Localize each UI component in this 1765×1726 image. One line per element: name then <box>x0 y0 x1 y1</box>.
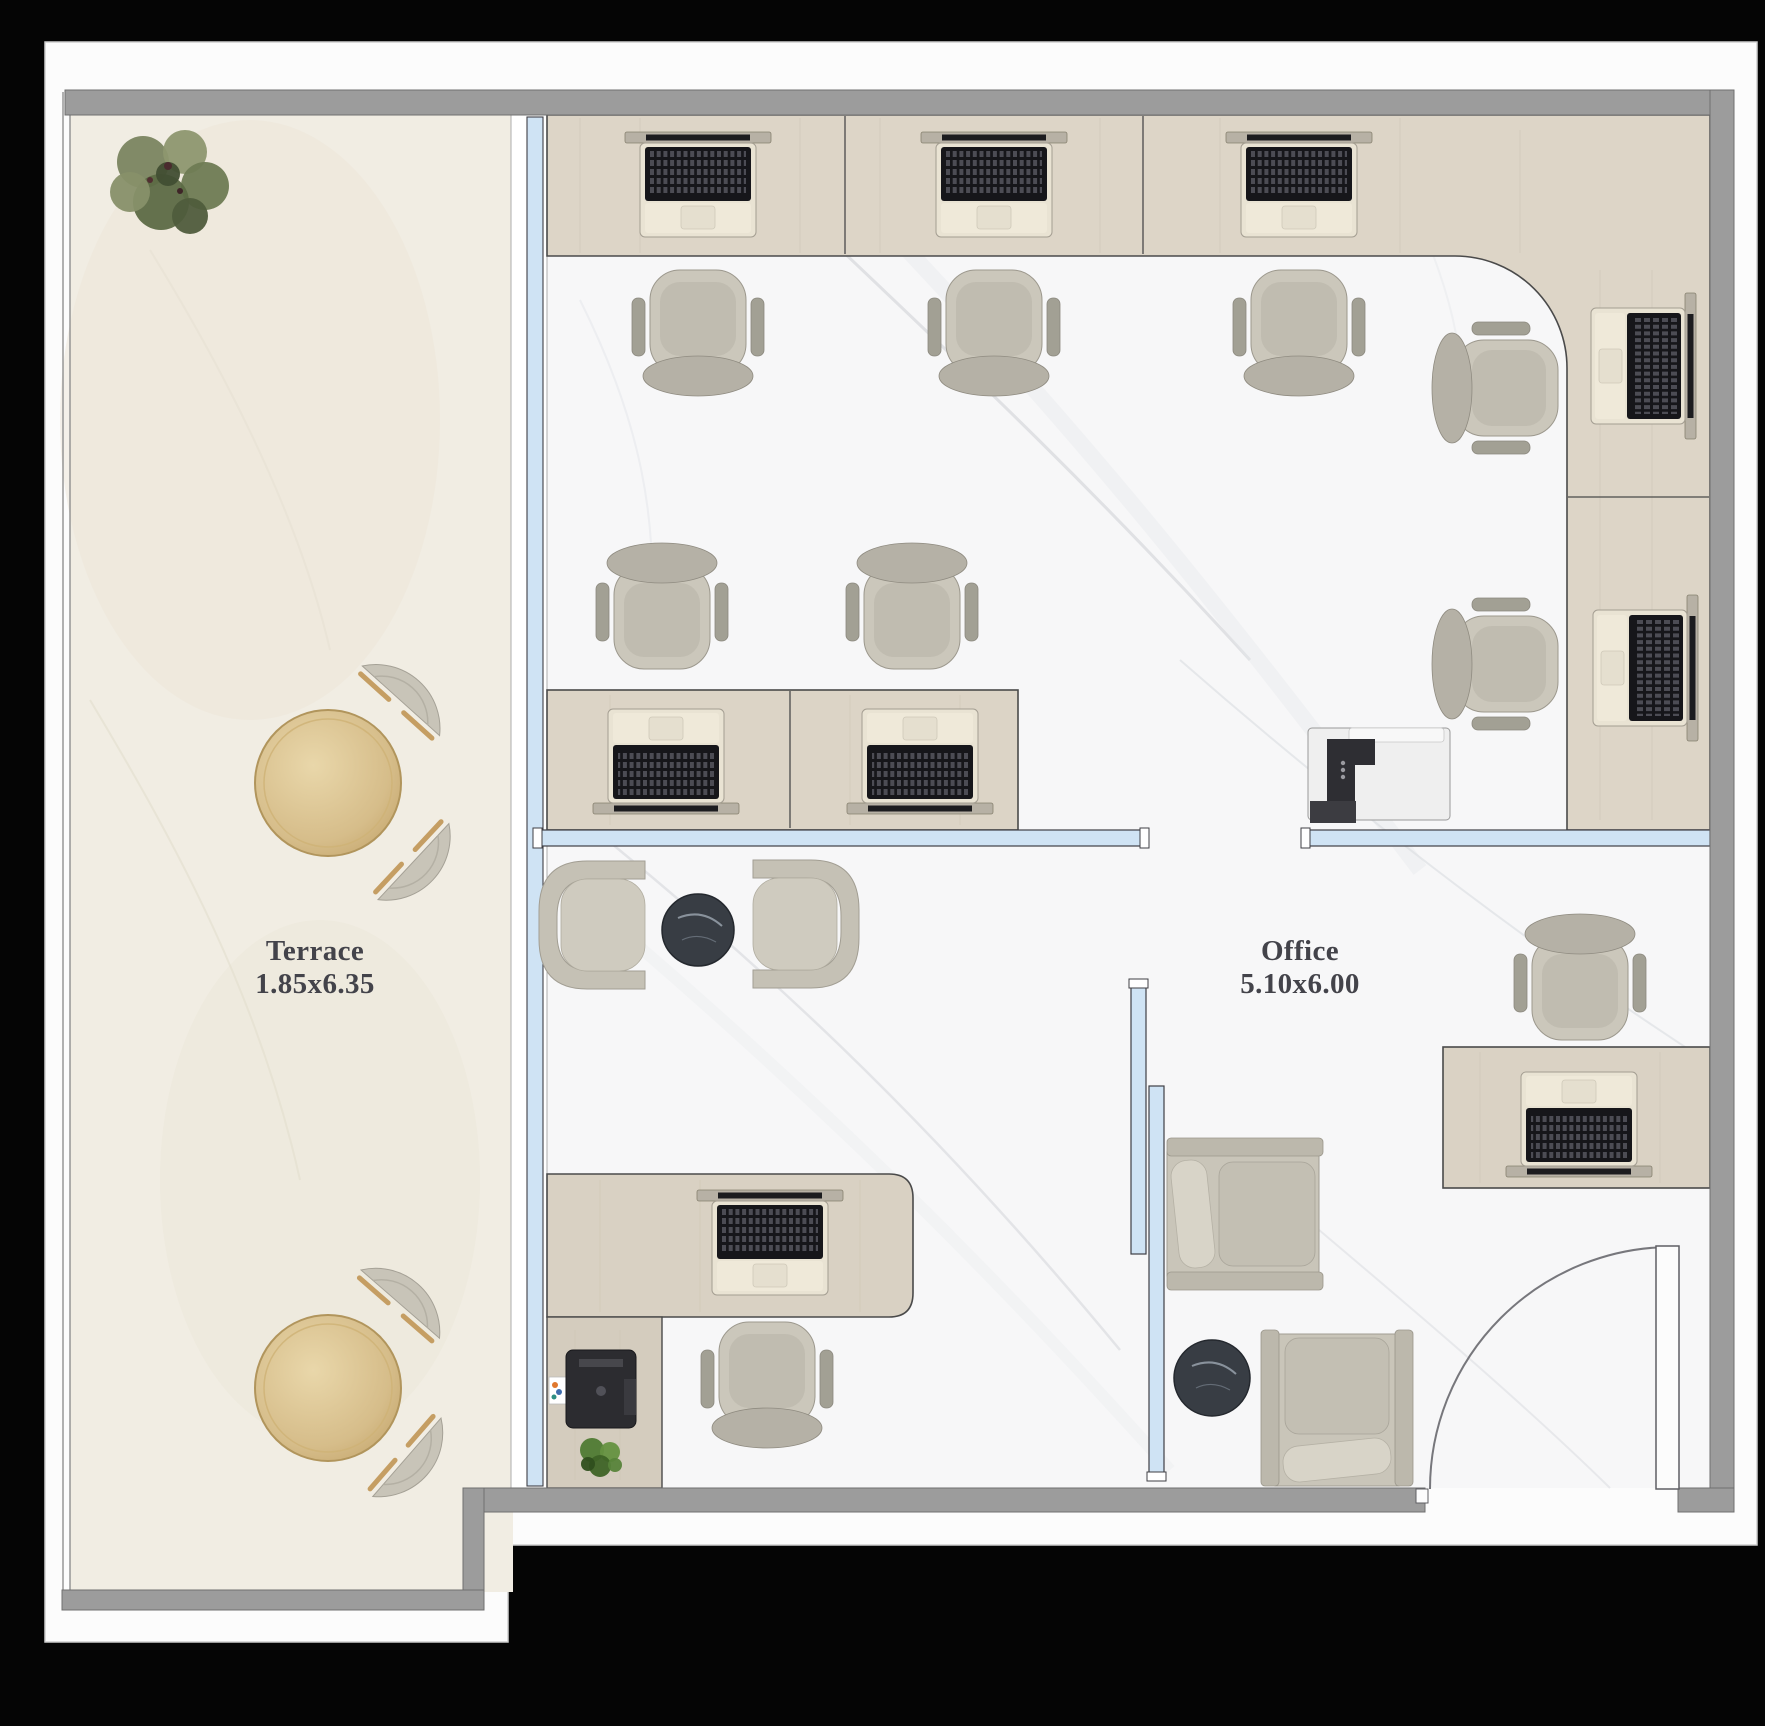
laptop <box>1593 595 1698 741</box>
top-wall <box>65 90 1734 115</box>
office-task-chair <box>1432 322 1558 454</box>
floor-plan-canvas <box>0 0 1765 1726</box>
terrace-name: Terrace <box>255 935 375 968</box>
office-task-chair <box>928 270 1060 396</box>
terrace-label: Terrace 1.85x6.35 <box>255 935 375 1001</box>
laptop <box>593 709 739 814</box>
office-dimensions: 5.10x6.00 <box>1240 968 1360 1001</box>
laptop <box>847 709 993 814</box>
laptop <box>1506 1072 1652 1177</box>
laptop <box>1226 132 1372 237</box>
door-leaf <box>1656 1246 1679 1489</box>
office-task-chair <box>1514 914 1646 1040</box>
side-table <box>1174 1340 1250 1416</box>
laptop <box>625 132 771 237</box>
terrace-table <box>255 1315 401 1461</box>
terrace-bottom-wall <box>62 1590 484 1610</box>
glass-partition-v2 <box>1149 1086 1164 1480</box>
office-task-chair <box>632 270 764 396</box>
glass-partition-h2 <box>1305 830 1710 846</box>
armchair <box>1261 1330 1413 1486</box>
glass-partition-h1 <box>537 830 1147 846</box>
bottom-wall-right <box>1678 1488 1734 1512</box>
office-task-chair <box>1432 598 1558 730</box>
office-task-chair <box>701 1322 833 1448</box>
glass-facade <box>511 115 547 1488</box>
office-name: Office <box>1240 935 1360 968</box>
door-jamb-notch <box>1416 1489 1428 1503</box>
right-wall <box>1710 90 1734 1512</box>
office-task-chair <box>596 543 728 669</box>
office-task-chair <box>1233 270 1365 396</box>
floor-plan-page: Terrace 1.85x6.35 Office 5.10x6.00 <box>0 0 1765 1726</box>
terrace-dimensions: 1.85x6.35 <box>255 968 375 1001</box>
laptop <box>1591 293 1696 439</box>
terrace-table <box>255 710 401 856</box>
bottom-wall <box>463 1488 1425 1512</box>
laptop <box>697 1190 843 1295</box>
laptop <box>921 132 1067 237</box>
armchair <box>1167 1138 1323 1290</box>
side-table <box>662 894 734 966</box>
office-label: Office 5.10x6.00 <box>1240 935 1360 1001</box>
printer-multifunction <box>1308 728 1450 823</box>
glass-partition-v1 <box>1131 984 1146 1254</box>
office-task-chair <box>846 543 978 669</box>
